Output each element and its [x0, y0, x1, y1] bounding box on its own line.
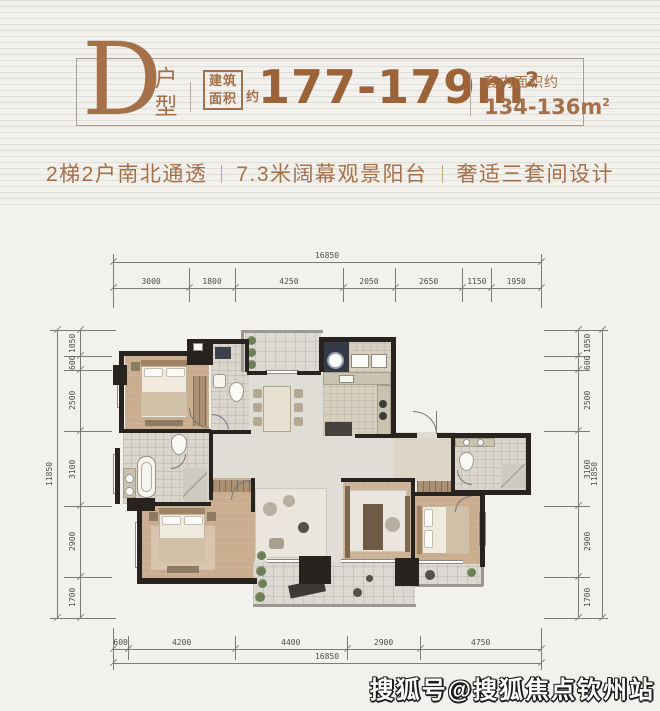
balcony-rail	[481, 564, 484, 586]
nightstand	[131, 362, 140, 371]
selling-points: 2梯2户南北通透7.3米阔幕观景阳台奢适三套间设计	[0, 158, 660, 188]
dim-tick	[50, 330, 116, 331]
balcony-rail	[241, 330, 244, 372]
kitchen-sink	[339, 375, 354, 383]
slider-balcony-north	[265, 370, 299, 374]
basin	[463, 439, 470, 446]
balcony-south	[253, 562, 415, 607]
dim-value: 1150	[457, 277, 497, 287]
dim-tick	[544, 506, 590, 507]
balcony-rail	[253, 604, 416, 607]
dim-line	[113, 288, 541, 289]
wall	[247, 371, 267, 375]
kitchen-island	[325, 422, 352, 436]
window	[371, 354, 387, 368]
entry-door-arc	[413, 411, 437, 434]
wall	[209, 434, 213, 500]
wall	[137, 508, 142, 584]
pouf	[269, 538, 284, 549]
selling-point-3: 奢适三套间设计	[457, 163, 615, 186]
bed-master-blanket	[159, 538, 205, 562]
subtitle-divider	[221, 165, 222, 183]
pillow	[184, 516, 203, 525]
washer	[327, 352, 344, 369]
closet-bedroom2	[417, 481, 453, 492]
wall	[119, 351, 191, 356]
dining-chair	[294, 389, 303, 398]
pier	[395, 558, 419, 586]
wall	[297, 371, 321, 375]
bathtub-inner	[141, 462, 152, 492]
dim-value: 16850	[307, 652, 347, 662]
dim-value: 2900	[67, 521, 79, 561]
stove-burner	[379, 400, 387, 408]
pot	[366, 575, 373, 582]
area-badge-line1: 建筑	[205, 72, 241, 90]
dim-value: 2900	[582, 521, 594, 561]
dim-value: 1700	[582, 577, 594, 617]
subtitle-divider	[442, 165, 443, 183]
nightstand	[207, 512, 216, 521]
window	[351, 354, 369, 368]
dim-value: 4200	[162, 638, 202, 648]
wall	[115, 448, 120, 504]
dim-tick	[64, 431, 112, 432]
inner-area-block: 套内面积约 134-136m2	[484, 72, 610, 119]
dim-value: 2650	[409, 277, 449, 287]
shower-east	[501, 464, 525, 488]
dim-value: 4250	[269, 277, 309, 287]
dining-chair	[294, 417, 303, 426]
dining-chair	[253, 389, 262, 398]
plan-letter: D	[82, 34, 162, 126]
area-badge: 建筑 面积	[203, 70, 243, 110]
balcony-north	[245, 332, 321, 372]
basin	[125, 474, 134, 483]
pillow	[424, 530, 433, 548]
dim-value: 11850	[589, 454, 601, 494]
coffee-table	[298, 522, 309, 533]
wall	[251, 478, 255, 512]
dim-value: 4400	[271, 638, 311, 648]
wall	[526, 433, 531, 495]
bed-north-blanket	[141, 392, 187, 416]
dining-table	[263, 386, 291, 432]
kitchen-counter-side	[377, 385, 391, 436]
wall	[119, 429, 211, 433]
wall	[319, 337, 396, 342]
floor-plan	[113, 330, 541, 618]
pillow	[424, 509, 433, 527]
plant	[255, 592, 265, 602]
basin	[477, 439, 484, 446]
wall	[319, 337, 324, 372]
vanity-east	[455, 438, 495, 447]
plant	[256, 566, 266, 576]
pier	[299, 556, 331, 584]
pier	[113, 365, 127, 385]
entry-hall	[393, 438, 451, 482]
entry-door-leaf	[436, 411, 437, 434]
selling-point-1: 2梯2户南北通透	[46, 163, 207, 186]
plant	[257, 551, 266, 560]
wall	[480, 493, 485, 567]
shower-west	[183, 468, 207, 502]
dim-line	[602, 330, 603, 618]
wall	[451, 438, 455, 492]
armchair	[263, 502, 277, 516]
dim-value: 1800	[192, 277, 232, 287]
header-divider	[190, 82, 191, 112]
wall	[411, 478, 415, 562]
nightstand	[149, 512, 158, 521]
dim-value: 16850	[307, 251, 347, 261]
dim-tick	[113, 254, 114, 308]
dim-value: 3100	[67, 449, 79, 489]
dim-value: 2500	[582, 380, 594, 420]
wall	[209, 339, 249, 344]
flyer-page: D 户型 建筑 面积 约 177-179m2 套内面积约 134-136m2 2…	[0, 0, 660, 711]
inner-area-value: 134-136m2	[484, 95, 610, 119]
tv-console	[345, 486, 350, 558]
pot	[353, 588, 362, 597]
dim-value: 11850	[44, 454, 56, 494]
basin	[125, 487, 134, 496]
dim-line	[113, 262, 541, 263]
area-badge-line2: 面积	[205, 90, 241, 108]
dim-tick	[50, 618, 116, 619]
shaft	[193, 343, 203, 351]
inner-area-number: 134-136m	[484, 95, 602, 119]
dining-chair	[253, 403, 262, 412]
wall	[137, 502, 211, 506]
kitchen-counter	[323, 372, 391, 385]
stove-burner	[379, 412, 387, 420]
pillow	[144, 368, 163, 377]
dim-value: 2500	[67, 380, 79, 420]
balcony-rail	[243, 330, 323, 333]
dim-value: 1700	[67, 577, 79, 617]
dim-line	[57, 330, 58, 618]
dining-chair	[253, 417, 262, 426]
dim-value: 2900	[364, 638, 404, 648]
dim-value: 600	[101, 638, 141, 648]
dim-value: 2050	[349, 277, 389, 287]
bed-north-bench	[145, 420, 183, 426]
armchair	[283, 495, 295, 507]
sink-north	[213, 374, 226, 388]
dining-chair	[294, 403, 303, 412]
dim-tick	[544, 431, 590, 432]
pillow	[162, 516, 181, 525]
dim-line	[113, 663, 541, 664]
bed2-blanket	[446, 506, 469, 554]
watermark: 搜狐号@搜狐焦点钦州站	[370, 670, 655, 705]
balcony-rail	[415, 584, 483, 587]
pillow	[166, 368, 185, 377]
dim-value: 3000	[131, 277, 171, 287]
selling-point-2: 7.3米阔幕观景阳台	[236, 163, 427, 186]
pot	[425, 570, 435, 580]
dim-value: 1950	[496, 277, 536, 287]
inner-area-sup: 2	[602, 96, 610, 109]
wall	[391, 337, 396, 438]
plant	[258, 579, 267, 588]
storage-unit	[215, 347, 231, 359]
dim-line	[113, 649, 541, 650]
header-divider-2	[470, 72, 471, 116]
dim-tick	[64, 506, 112, 507]
dim-tick	[541, 254, 542, 308]
bed-master-bench	[167, 566, 199, 573]
study-chair	[385, 517, 400, 532]
slider-bedroom2	[419, 560, 463, 564]
wall	[355, 434, 393, 438]
study-shelf	[405, 496, 410, 552]
wall	[119, 351, 124, 433]
dim-value: 600	[582, 343, 594, 383]
wall	[139, 578, 257, 584]
slider-study	[341, 559, 397, 563]
plan-type-label: 户型	[153, 64, 179, 120]
dim-value: 600	[67, 343, 79, 383]
wall	[341, 478, 413, 482]
wall	[245, 339, 249, 372]
dim-value: 4750	[461, 638, 501, 648]
study-desk	[363, 504, 383, 550]
plant	[467, 568, 476, 577]
inner-area-label: 套内面积约	[484, 72, 610, 92]
